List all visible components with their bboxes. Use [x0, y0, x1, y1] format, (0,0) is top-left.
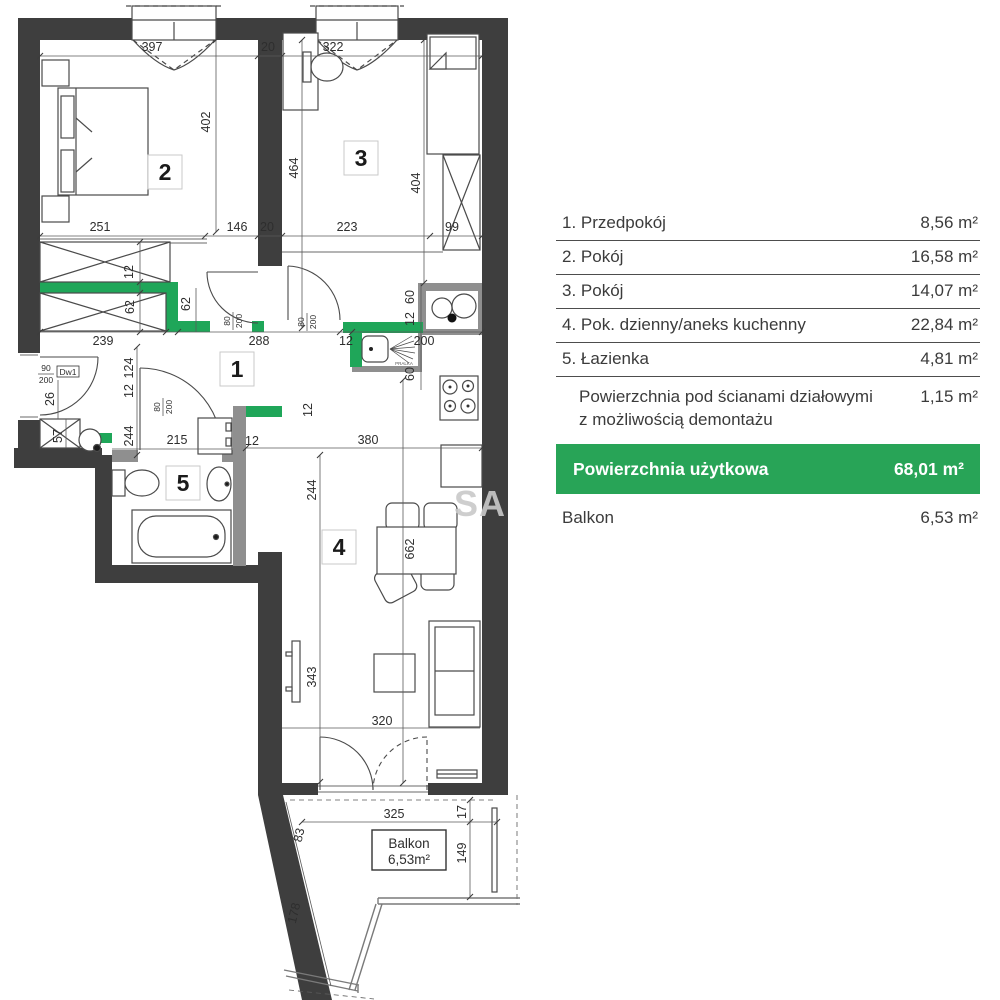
balcony-label: Balkon	[562, 507, 614, 529]
partition-label-line1: Powierzchnia pod ścianami działowymi	[562, 386, 873, 408]
legend-row-pokoj2: 2. Pokój 16,58 m²	[556, 241, 980, 275]
room-name: 1. Przedpokój	[562, 212, 666, 234]
dim-146: 146	[227, 220, 248, 234]
dim-200: 200	[414, 334, 435, 348]
partition-label-line2: z możliwością demontażu	[562, 409, 873, 431]
furniture-bedroom	[42, 60, 148, 222]
dim-244l: 244	[305, 480, 319, 501]
window-bedroom	[126, 6, 222, 70]
door-h-label: 200	[234, 314, 244, 328]
legend-row-lazienka: 5. Łazienka 4,81 m²	[556, 343, 980, 377]
dim-215: 215	[167, 433, 188, 447]
room-name: 2. Pokój	[562, 246, 623, 268]
entrance-h-label: 200	[39, 375, 53, 385]
room-label-4: 4	[333, 534, 346, 560]
door-h-label: 200	[164, 400, 174, 414]
balkon-label: Balkon	[388, 836, 429, 851]
dim-c62b: 62	[179, 297, 193, 311]
room-name: 4. Pok. dzienny/aneks kuchenny	[562, 314, 806, 336]
balcony-door	[320, 737, 427, 790]
legend-row-dzienny: 4. Pok. dzienny/aneks kuchenny 22,84 m²	[556, 309, 980, 343]
total-area-label: Powierzchnia użytkowa	[573, 458, 768, 481]
dim-k60b: 60	[403, 367, 417, 381]
bedroom-door	[207, 272, 258, 323]
room-name: 3. Pokój	[562, 280, 623, 302]
dim-251: 251	[90, 220, 111, 234]
dim-239: 239	[93, 334, 114, 348]
dim-99: 99	[445, 220, 459, 234]
dim-h12w: 12	[245, 434, 259, 448]
dim-83: 83	[291, 827, 308, 844]
dim-288: 288	[249, 334, 270, 348]
dim-662: 662	[403, 539, 417, 560]
dim-k12c: 12	[301, 403, 315, 417]
dim-57: 57	[51, 429, 65, 443]
room-area: 22,84 m²	[911, 314, 978, 336]
legend-row-partition-walls: Powierzchnia pod ścianami działowymi z m…	[556, 377, 980, 436]
kitchen-door	[288, 266, 340, 320]
dim-c62a: 62	[123, 300, 137, 314]
legend-row-przedpokoj: 1. Przedpokój 8,56 m²	[556, 207, 980, 241]
dim-k12b: 12	[403, 312, 417, 326]
dim-17: 17	[455, 805, 469, 819]
dim-223: 223	[337, 220, 358, 234]
dim-343: 343	[305, 667, 319, 688]
partition-area: 1,15 m²	[920, 386, 978, 408]
sofa	[429, 621, 480, 727]
dim-404: 404	[409, 173, 423, 194]
balcony-divider	[492, 808, 497, 892]
dim-124: 124	[122, 358, 136, 379]
dim-325: 325	[384, 807, 405, 821]
dim-top-20: 20	[261, 40, 275, 54]
entrance-w-label: 90	[41, 363, 51, 373]
legend-row-pokoj3: 3. Pokój 14,07 m²	[556, 275, 980, 309]
room-label-5: 5	[177, 470, 190, 496]
room-label-1: 1	[231, 356, 244, 382]
dim-h12: 12	[122, 384, 136, 398]
partition-label: Powierzchnia pod ścianami działowymi z m…	[562, 386, 873, 430]
entrance-door-label: 90 200 Dw1	[38, 363, 79, 385]
radiator	[437, 770, 477, 778]
tv-unit	[286, 641, 300, 702]
area-legend: 1. Przedpokój 8,56 m² 2. Pokój 16,58 m² …	[556, 207, 980, 530]
room-label-2: 2	[159, 159, 172, 185]
dim-c12: 12	[122, 265, 136, 279]
dim-20b: 20	[260, 220, 274, 234]
balkon-label-box: Balkon 6,53m²	[372, 830, 446, 870]
door-h-label: 200	[308, 315, 318, 329]
entrance-code-label: Dw1	[59, 367, 76, 377]
dim-top-397: 397	[142, 40, 163, 54]
room-area: 14,07 m²	[911, 280, 978, 302]
dim-top-322: 322	[323, 40, 344, 54]
door-w-label: 80	[222, 316, 232, 326]
door-w-label: 80	[296, 317, 306, 327]
floorplan-drawing: Balkon 6,53m²	[0, 0, 520, 1000]
floorplan-page: Balkon 6,53m²	[0, 0, 1000, 1000]
dim-244h: 244	[122, 426, 136, 447]
dim-149: 149	[455, 843, 469, 864]
furniture-room3	[283, 33, 480, 250]
balcony-area: 6,53 m²	[920, 507, 978, 529]
legend-row-balkon: Balkon 6,53 m²	[556, 494, 980, 529]
room-label-3: 3	[355, 145, 368, 171]
total-area-value: 68,01 m²	[894, 458, 964, 481]
furniture-living	[286, 503, 480, 778]
dim-k60a: 60	[403, 290, 417, 304]
dim-464: 464	[287, 158, 301, 179]
dim-380: 380	[358, 433, 379, 447]
room-area: 4,81 m²	[920, 348, 978, 370]
room-area: 8,56 m²	[920, 212, 978, 234]
dim-26: 26	[43, 392, 57, 406]
door-w-label: 80	[152, 402, 162, 412]
dim-320: 320	[372, 714, 393, 728]
watermark-text: SA	[454, 483, 506, 524]
dim-402: 402	[199, 112, 213, 133]
room-name: 5. Łazienka	[562, 348, 649, 370]
appliance-label: PRALKA	[395, 361, 413, 366]
dim-k12a: 12	[339, 334, 353, 348]
room-area: 16,58 m²	[911, 246, 978, 268]
balkon-area: 6,53m²	[388, 852, 431, 867]
total-area-band: Powierzchnia użytkowa 68,01 m²	[556, 444, 980, 495]
